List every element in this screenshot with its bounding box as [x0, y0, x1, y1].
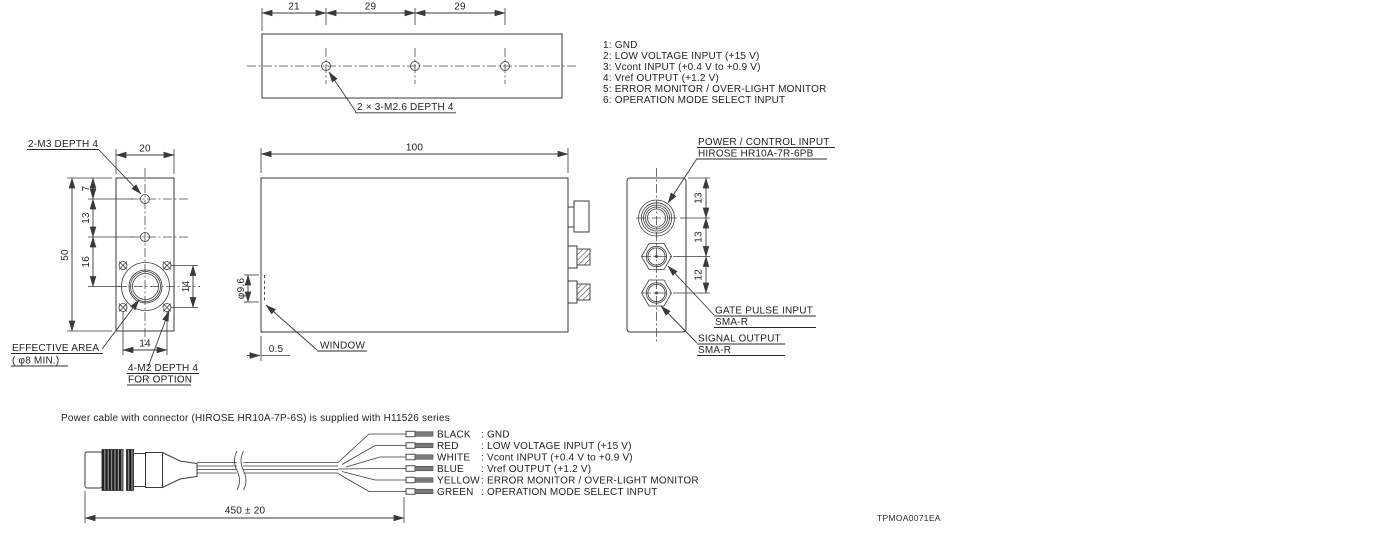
cable-strain-relief [163, 453, 198, 488]
cable-assembly: Power cable with connector (HIROSE HR10A… [61, 413, 699, 523]
wire-green [338, 474, 406, 492]
rear-view-notes: POWER / CONTROL INPUT HIROSE HR10A-7R-6P… [661, 137, 835, 356]
hirose-connector-body [574, 201, 589, 232]
rear-view-dimensions: 13 13 12 [673, 178, 710, 293]
dim-50: 50 [60, 249, 71, 261]
wire-desc-yellow: : ERROR MONITOR / OVER-LIGHT MONITOR [481, 476, 699, 487]
wire-desc-white: : Vcont INPUT (+0.4 V to +0.9 V) [481, 453, 633, 464]
sma-connector-1-thread [577, 249, 590, 265]
signal-note-1: SIGNAL OUTPUT [698, 334, 781, 345]
top-view-dimensions: 21 29 29 [262, 2, 505, 32]
pin-list: 1: GND 2: LOW VOLTAGE INPUT (+15 V) 3: V… [603, 40, 827, 106]
wire-color-white: WHITE [437, 453, 470, 464]
cable-bundle [197, 449, 338, 491]
cable-wires [338, 431, 433, 494]
dim-100: 100 [406, 143, 424, 154]
dim-7: 7 [81, 185, 92, 191]
wire-yellow [342, 472, 406, 481]
dim-450: 450 ± 20 [225, 506, 266, 517]
cable-break-gap [237, 449, 244, 491]
top-view-hole-note: 2 × 3-M2.6 DEPTH 4 [329, 72, 456, 113]
wire-red [342, 446, 406, 465]
wire-desc-red: : LOW VOLTAGE INPUT (+15 V) [481, 441, 632, 452]
side-view: 100 φ9.6 0.5 WINDOW [236, 143, 590, 362]
side-view-dimensions: 100 φ9.6 0.5 [236, 143, 568, 362]
dim-0-5: 0.5 [269, 344, 284, 355]
m3-note: 2-M3 DEPTH 4 [28, 139, 98, 150]
hole-note-text: 2 × 3-M2.6 DEPTH 4 [357, 102, 454, 113]
dim-29b: 29 [454, 2, 466, 13]
dim-20: 20 [139, 144, 151, 155]
gate-note-1: GATE PULSE INPUT [715, 306, 813, 317]
wire-color-black: BLACK [437, 430, 471, 441]
side-view-connectors [568, 201, 590, 303]
effective-area-note-2: ( φ8 MIN.) [12, 356, 59, 367]
side-view-body [261, 178, 568, 332]
sma-connector-2-nut [568, 281, 577, 303]
wire-blue [338, 469, 406, 470]
dim-window-dia: φ9.6 [236, 278, 247, 299]
gate-note-2: SMA-R [715, 317, 748, 328]
front-view: 20 50 7 13 16 14 14 [11, 139, 200, 386]
drawing-canvas: 21 29 29 2 × 3-M2.6 DEPTH 4 1: GND 2: LO… [0, 0, 1400, 540]
wire-color-red: RED [437, 441, 459, 452]
wire-desc-green: : OPERATION MODE SELECT INPUT [481, 487, 658, 498]
doc-code: TPMOA0071EA [877, 513, 941, 523]
pin-5: 5: ERROR MONITOR / OVER-LIGHT MONITOR [603, 84, 827, 95]
wire-terminals [406, 431, 433, 494]
wire-black [338, 434, 406, 463]
window-note: WINDOW [320, 341, 365, 352]
dimensional-outline-drawing: 21 29 29 2 × 3-M2.6 DEPTH 4 1: GND 2: LO… [0, 0, 1400, 540]
dim-14-v: 14 [181, 281, 192, 293]
pin-2: 2: LOW VOLTAGE INPUT (+15 V) [603, 51, 759, 62]
signal-note-2: SMA-R [698, 345, 731, 356]
power-note-1: POWER / CONTROL INPUT [698, 137, 830, 148]
pin-3: 3: Vcont INPUT (+0.4 V to +0.9 V) [603, 62, 761, 73]
wire-labels: BLACK : GND RED : LOW VOLTAGE INPUT (+15… [437, 430, 699, 499]
wire-color-yellow: YELLOW [437, 476, 480, 487]
dim-13a: 13 [694, 192, 705, 204]
m2-note-1: 4-M2 DEPTH 4 [128, 363, 198, 374]
wire-color-blue: BLUE [437, 464, 464, 475]
power-connector [636, 200, 677, 236]
rear-view: 13 13 12 POWER / CONTROL INPUT HIROSE HR… [627, 137, 835, 356]
hirose-connector-stub [568, 207, 574, 227]
pin-4: 4: Vref OUTPUT (+1.2 V) [603, 73, 719, 84]
wire-white [346, 457, 406, 467]
top-view: 21 29 29 2 × 3-M2.6 DEPTH 4 [247, 2, 577, 114]
sma-connector-1-nut [568, 246, 577, 268]
m2-note-2: FOR OPTION [128, 375, 192, 386]
power-note-2: HIROSE HR10A-7R-6PB [698, 149, 814, 160]
cable-connector [85, 450, 197, 491]
dim-13: 13 [81, 212, 92, 224]
sma-connector-2-thread [577, 284, 590, 300]
pin-1: 1: GND [603, 40, 638, 51]
effective-area-note-1: EFFECTIVE AREA [12, 343, 99, 354]
dim-29a: 29 [365, 2, 377, 13]
dim-13b: 13 [694, 231, 705, 243]
wire-desc-black: : GND [481, 430, 510, 441]
wire-color-green: GREEN [437, 487, 474, 498]
cable-length-dimension: 450 ± 20 [85, 491, 404, 523]
wire-desc-blue: : Vref OUTPUT (+1.2 V) [481, 464, 591, 475]
dim-16: 16 [81, 256, 92, 268]
dim-14-h: 14 [139, 339, 151, 350]
dim-21: 21 [288, 2, 300, 13]
front-view-dimensions: 20 50 7 13 16 14 14 [60, 144, 198, 356]
pin-6: 6: OPERATION MODE SELECT INPUT [603, 95, 785, 106]
dim-12: 12 [694, 269, 705, 281]
cable-note: Power cable with connector (HIROSE HR10A… [61, 413, 450, 424]
